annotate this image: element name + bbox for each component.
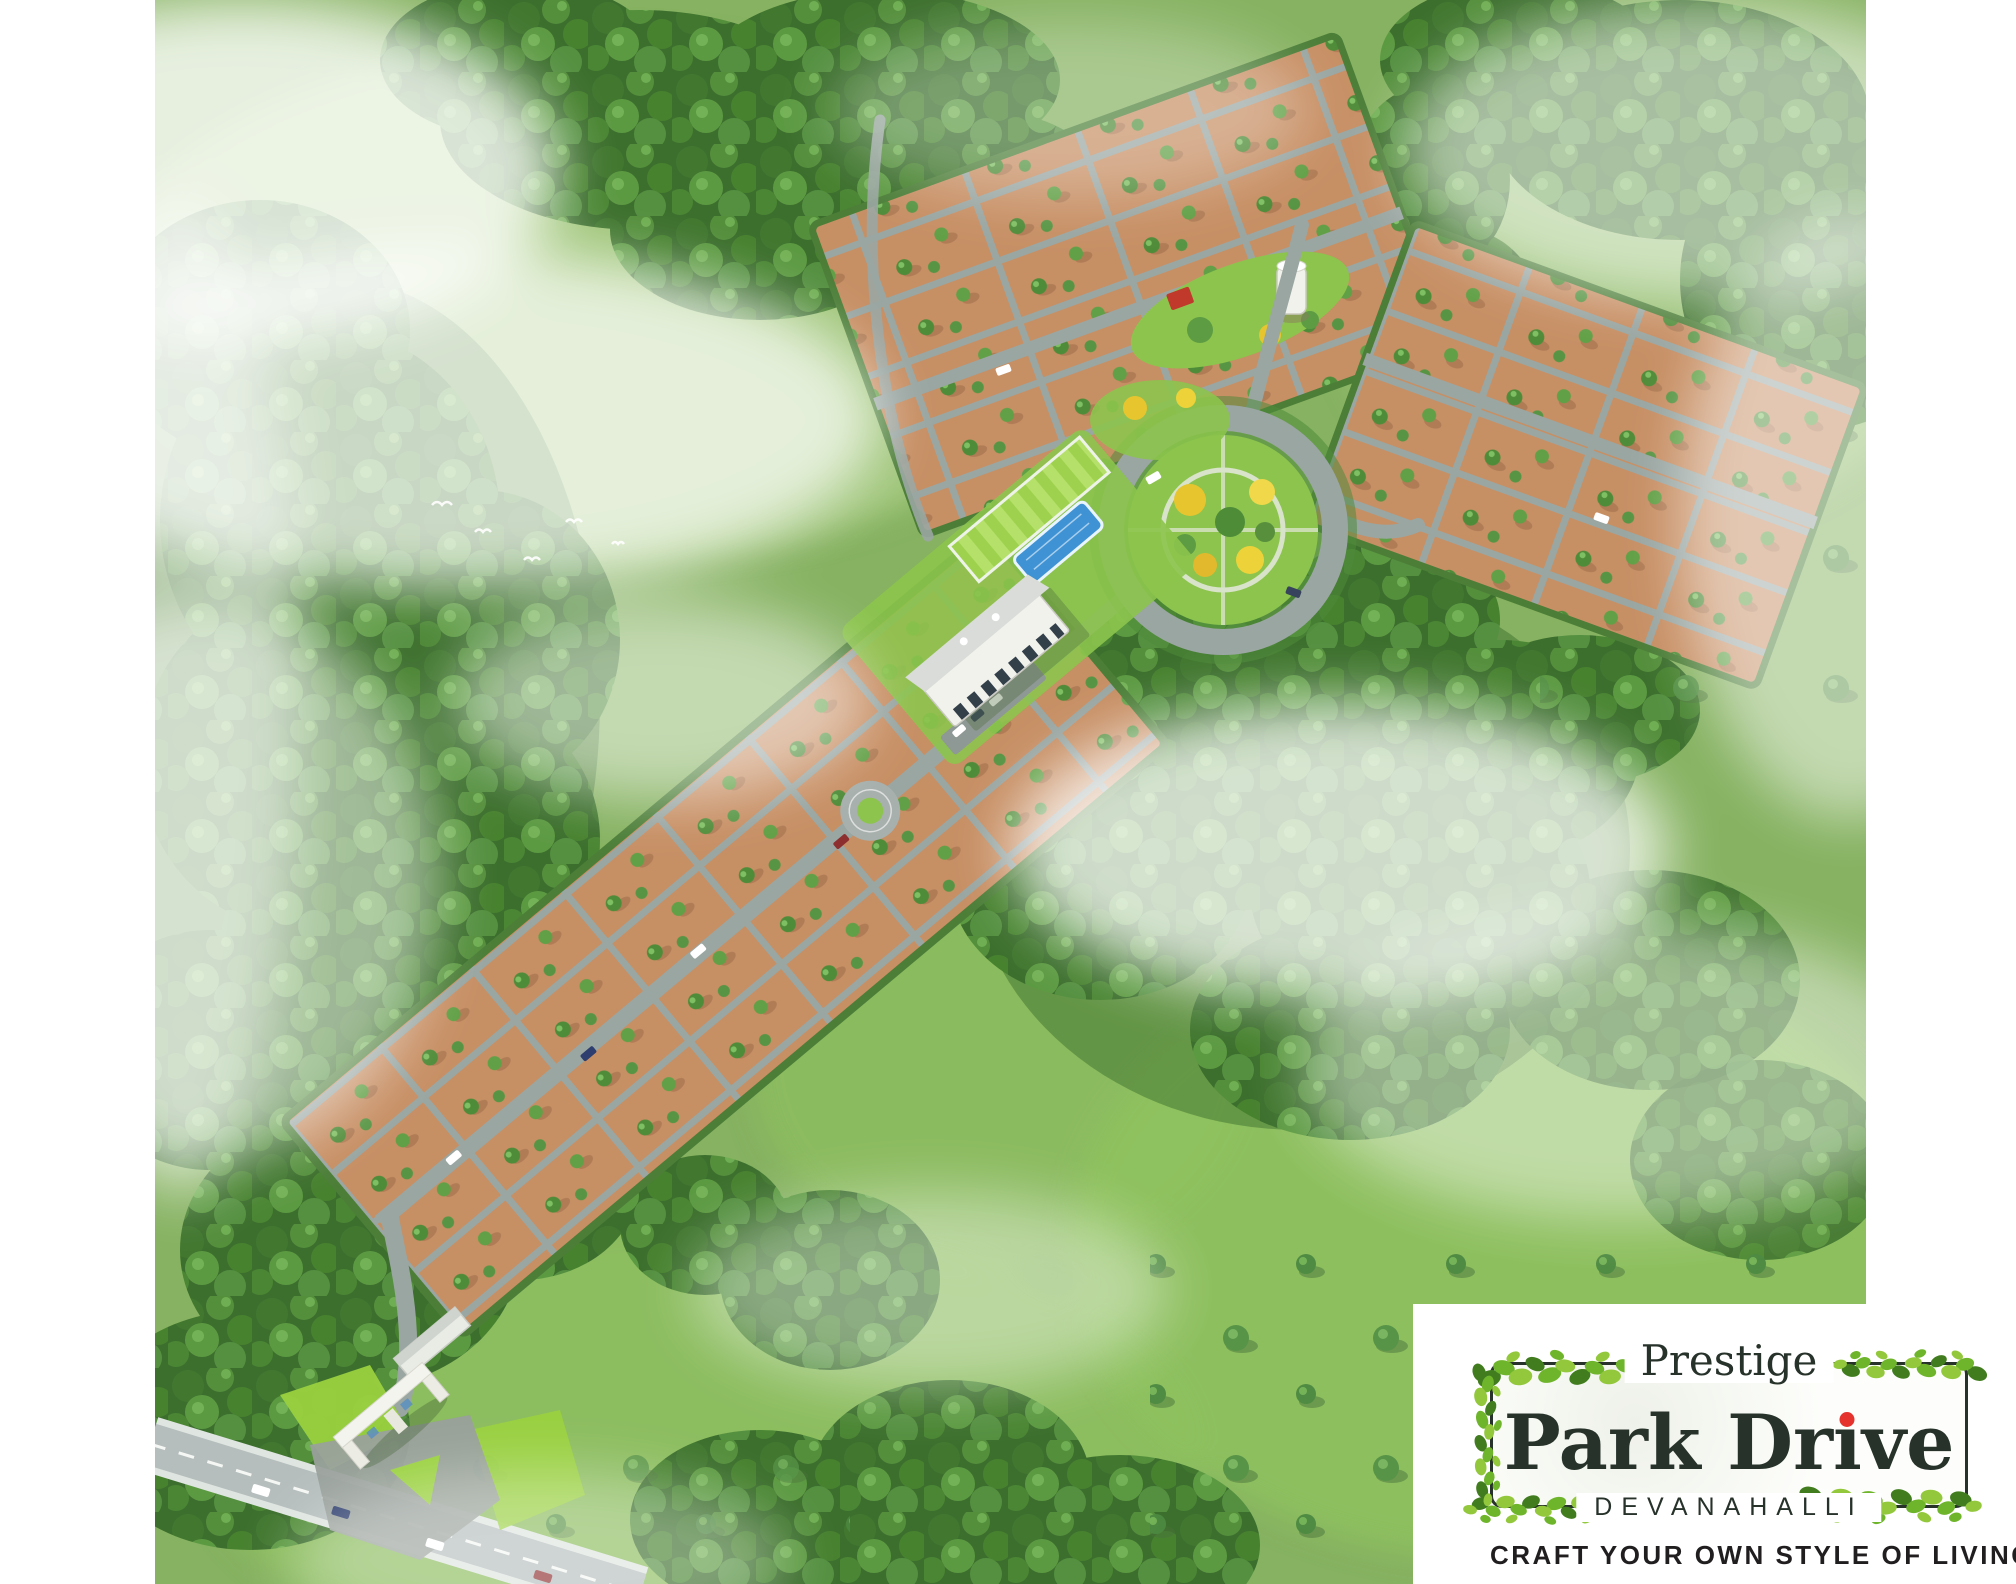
logo-box: Prestige Park Drıve DEVANAHALLI (1490, 1362, 1968, 1508)
page-canvas: Prestige Park Drıve DEVANAHALLI CRAFT YO… (0, 0, 2016, 1584)
project-name: Park Drıve (1504, 1405, 1955, 1481)
project-name-i-reddot: ı (1833, 1405, 1862, 1481)
tagline: CRAFT YOUR OWN STYLE OF LIVING (1490, 1540, 1962, 1571)
brand-name: Prestige (1625, 1339, 1834, 1383)
leaf-bush-icon (1831, 1335, 1991, 1389)
project-location: DEVANAHALLI (1576, 1493, 1881, 1522)
logo-panel: Prestige Park Drıve DEVANAHALLI CRAFT YO… (1413, 1304, 2016, 1584)
project-name-part: Park Dr (1504, 1398, 1833, 1487)
project-name-part: ve (1862, 1398, 1955, 1487)
